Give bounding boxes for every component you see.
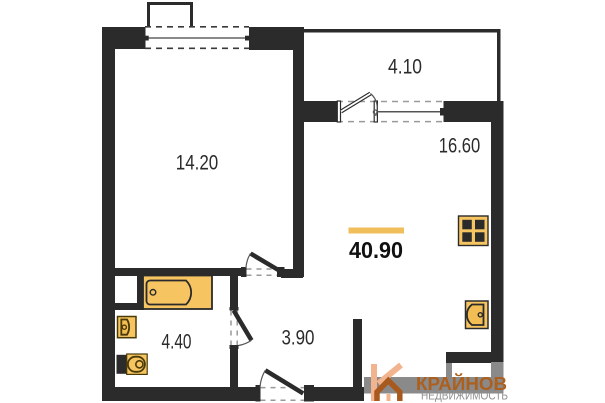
svg-text:НЕДВИЖИМОСТЬ: НЕДВИЖИМОСТЬ — [421, 389, 508, 403]
svg-text:16.60: 16.60 — [439, 134, 481, 158]
svg-text:14.20: 14.20 — [176, 151, 219, 175]
svg-text:4.10: 4.10 — [388, 55, 422, 79]
svg-text:3.90: 3.90 — [282, 326, 315, 350]
svg-text:4.40: 4.40 — [162, 330, 192, 354]
svg-text:40.90: 40.90 — [349, 237, 403, 263]
